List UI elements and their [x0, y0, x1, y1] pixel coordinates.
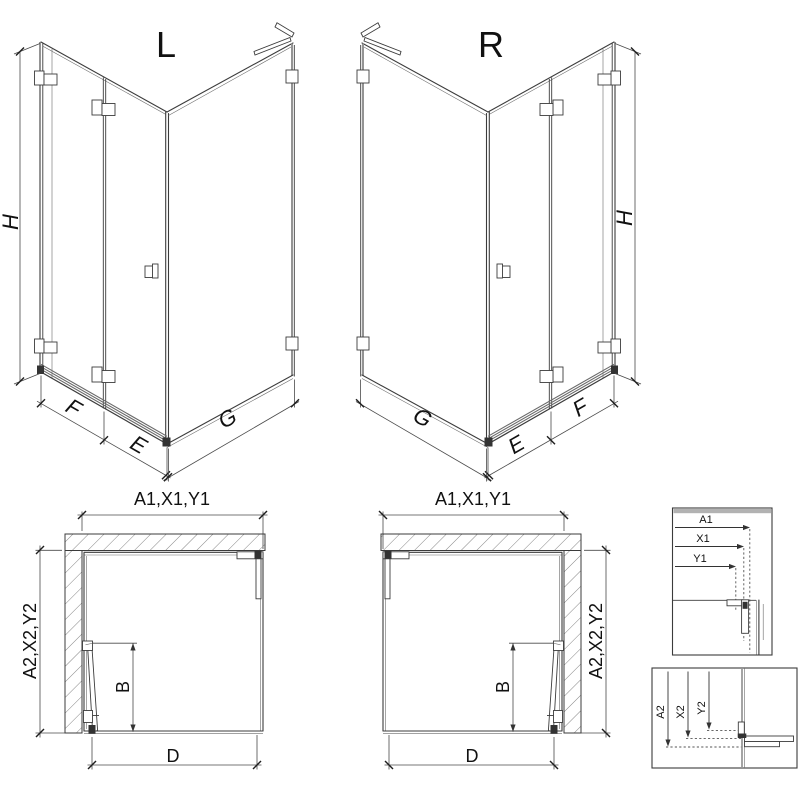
detail-x1-label: X1: [696, 533, 709, 545]
detail-inset-width: [673, 508, 773, 655]
detail-y2-label: Y2: [696, 701, 708, 714]
plan-right-depth-label: A2,X2,Y2: [586, 603, 606, 679]
detail-y1-label: Y1: [693, 553, 706, 565]
plan-right-door-label: B: [493, 681, 513, 693]
drawing-canvas: L H F E G R H F E G A1,X1,Y1 A2,X2,Y2 B …: [0, 0, 800, 800]
plan-left-depth-label: A2,X2,Y2: [20, 603, 40, 679]
plan-left-door-label: B: [113, 681, 133, 693]
detail-x2-label: X2: [675, 705, 687, 718]
plan-right-entry-label: D: [466, 746, 479, 766]
plan-right-width-label: A1,X1,Y1: [435, 489, 511, 509]
detail-a1-label: A1: [699, 514, 712, 526]
plan-left-width-label: A1,X1,Y1: [134, 489, 210, 509]
shower-enclosure-technical-drawing: L H F E G R H F E G A1,X1,Y1 A2,X2,Y2 B …: [0, 0, 800, 800]
plan-left-entry-label: D: [167, 746, 180, 766]
iso-right-height-label: H: [612, 210, 637, 226]
iso-left-height-label: H: [0, 214, 23, 230]
detail-a2-label: A2: [655, 705, 667, 718]
detail-inset-depth: [652, 668, 797, 768]
door-handle: [145, 264, 158, 278]
variant-left-title: L: [156, 24, 176, 65]
wall-band: [674, 509, 772, 513]
variant-right-title: R: [478, 24, 504, 65]
